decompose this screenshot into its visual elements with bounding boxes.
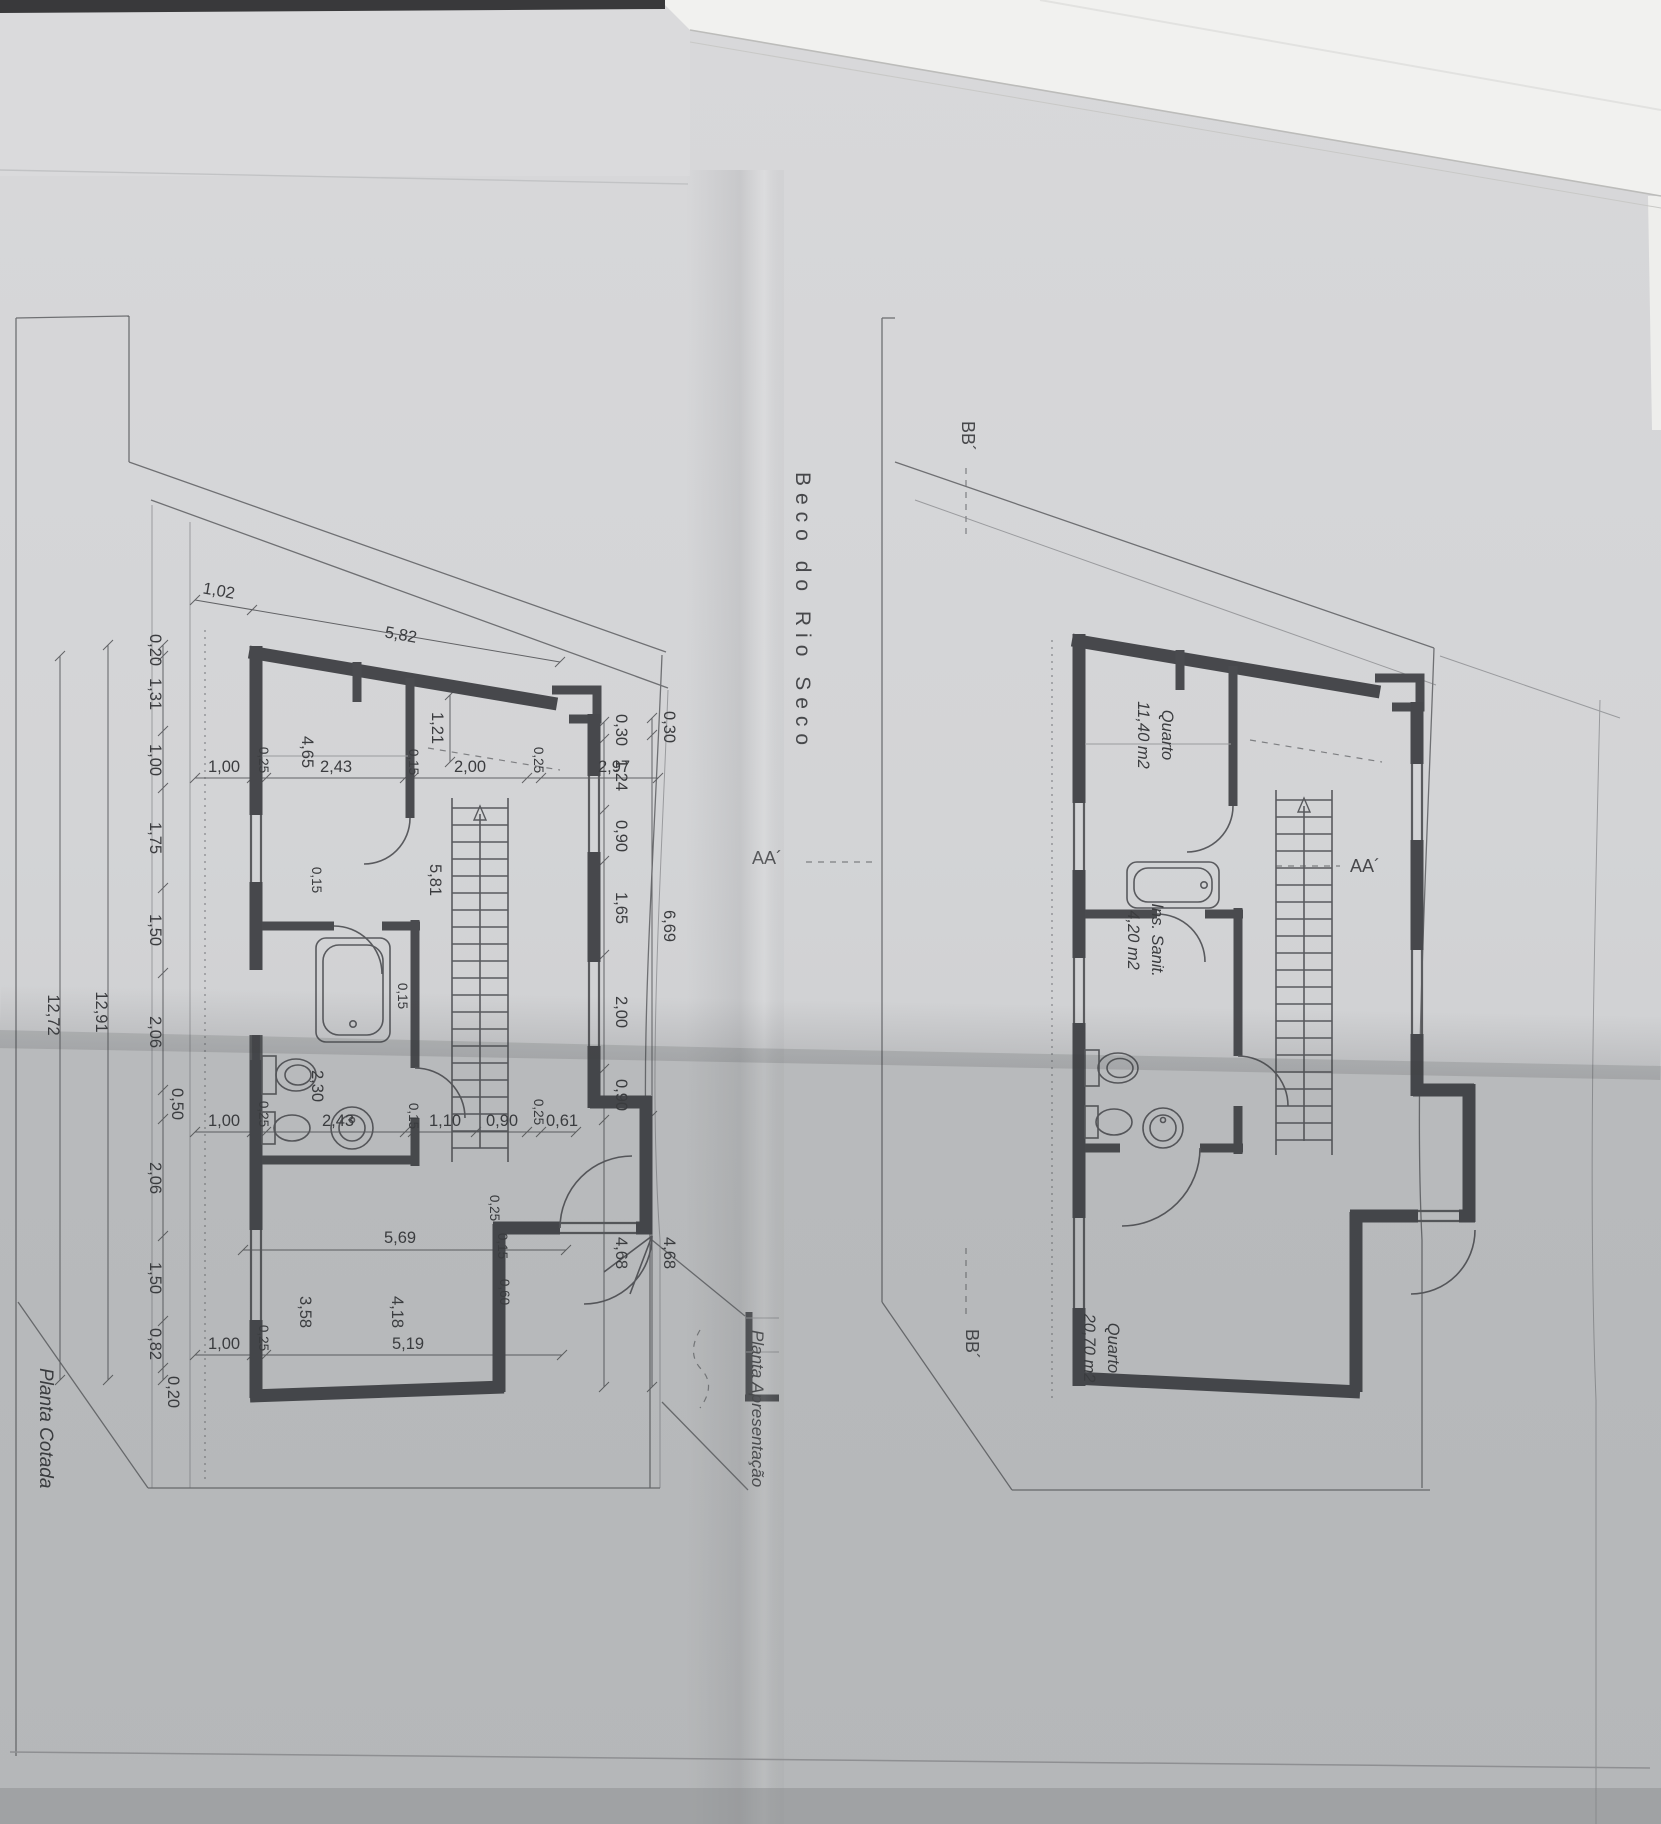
dimension-label: 1,50 — [146, 914, 164, 946]
dimension-label: 6,69 — [660, 910, 678, 942]
section-marker-aa-right: AA´ — [1350, 856, 1380, 876]
dimension-label: 0,20 — [146, 634, 164, 666]
room-name: Quarto — [1158, 710, 1176, 760]
fold-shadow — [0, 1030, 1661, 1824]
paper-top-band — [0, 8, 690, 176]
dimension-label: 2,43 — [320, 758, 352, 776]
dimension-label: 0,15 — [309, 867, 324, 893]
dimension-label: 1,75 — [146, 822, 164, 854]
dimension-label: 0,15 — [406, 749, 421, 775]
dimension-label: 0,25 — [256, 747, 271, 773]
section-marker-bb-top: BB´ — [958, 421, 978, 451]
dimension-label: 1,65 — [612, 892, 630, 924]
street-name: Beco do Rio Seco — [791, 472, 814, 752]
dimension-label: 5,81 — [426, 864, 444, 896]
dimension-label: 1,00 — [146, 744, 164, 776]
photo-bottom-band — [0, 1788, 1661, 1824]
dimension-label: 0,30 — [660, 711, 678, 743]
floor-plan-drawing: 1,02 5,82 0,20 1,31 1,00 1,75 1,50 2,06 … — [0, 0, 1661, 1824]
room-area: 4,20 m2 — [1124, 910, 1142, 970]
dimension-label: 1,24 — [612, 759, 630, 791]
room-area: 11,40 m2 — [1134, 701, 1152, 769]
dimension-label: 0,90 — [612, 820, 630, 852]
dimension-label: 4,65 — [298, 736, 316, 768]
photographed-plan-sheet: 1,02 5,82 0,20 1,31 1,00 1,75 1,50 2,06 … — [0, 0, 1661, 1824]
dimension-label: 1,21 — [428, 712, 446, 744]
dimension-label: 1,31 — [146, 678, 164, 710]
dimension-label: 0,25 — [531, 747, 546, 773]
dimension-label: 2,00 — [454, 758, 486, 776]
dimension-label: 0,30 — [612, 714, 630, 746]
dimension-label: 1,00 — [208, 758, 240, 776]
room-name: Ins. Sanit. — [1148, 903, 1166, 976]
